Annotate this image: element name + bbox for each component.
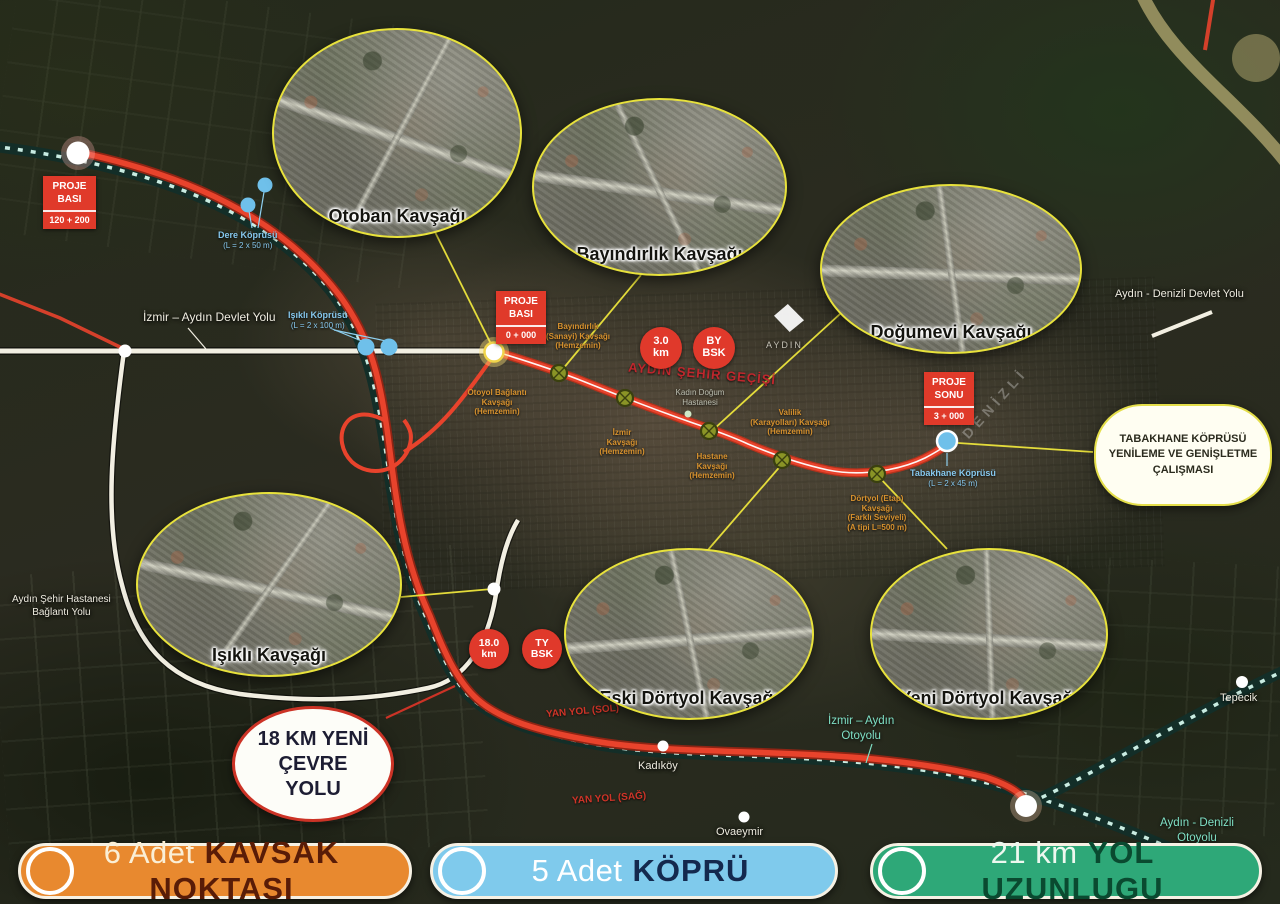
label-junction-hastane: Hastane Kavşağı (Hemzemin)	[680, 452, 744, 481]
label-line: SONU	[924, 390, 974, 403]
label-tabakhane-koprusu: Tabakhane Köprüsü (L = 2 x 45 m)	[910, 468, 996, 489]
marker-proje-basi-0: PROJE BASI 0 + 000	[496, 291, 546, 344]
badge-line: BSK	[531, 649, 553, 660]
callout-eski-dortyol-kavsagi: Eski Dörtyol Kavşağı	[564, 548, 814, 720]
legend-count: 5 Adet	[532, 853, 623, 888]
project-map: AYDIN DENİZLİ İzmir – Aydın Devlet Yolu …	[0, 0, 1280, 904]
label-line: BASI	[496, 309, 546, 322]
legend-count: 6 Adet	[104, 835, 195, 870]
label-line: (Karayolları) Kavşağı	[740, 418, 840, 428]
legend-circle-icon	[878, 847, 926, 895]
marker-value: 0 + 000	[496, 325, 546, 344]
marker-proje-basi-120: PROJE BASI 120 + 200	[43, 176, 96, 229]
legend-circle-icon	[26, 847, 74, 895]
label-izmir-aydin-devlet-yolu: İzmir – Aydın Devlet Yolu	[143, 310, 276, 324]
road-denizli-devlet-stub	[1152, 312, 1212, 336]
label-line: (Farklı Seviyeli)	[830, 513, 924, 523]
legend-count: 21 km	[991, 835, 1078, 870]
note-line: TABAKHANE KÖPRÜSÜ	[1120, 432, 1247, 447]
label-line: Otoyol Bağlantı	[452, 388, 542, 398]
badge-line: BSK	[702, 348, 725, 360]
marker-title: PROJE BASI	[496, 291, 546, 321]
note-line: ÇEVRE	[279, 752, 348, 777]
callout-label: Doğumevi Kavşağı	[822, 322, 1080, 343]
label-hastane-baglanti: Aydın Şehir Hastanesi Bağlantı Yolu	[12, 593, 111, 619]
note-line: YENİLEME VE GENİŞLETME	[1109, 447, 1258, 462]
label-line: Bağlantı Yolu	[12, 606, 111, 619]
badge-3km: 3.0 km	[640, 327, 682, 369]
place-aydin: AYDIN	[766, 340, 803, 350]
place-tepecik: Tepecik	[1220, 692, 1257, 704]
label-line: (Hemzemin)	[740, 427, 840, 437]
label-line: (L = 2 x 50 m)	[218, 241, 278, 251]
label-line: Dörtyol (Etap)	[830, 494, 924, 504]
callout-label: Eski Dörtyol Kavşağı	[566, 688, 812, 709]
callout-bayindirlik-kavsagi: Bayındırlık Kavşağı	[532, 98, 787, 276]
label-line: (L = 2 x 100 m)	[288, 321, 348, 331]
callout-dogumevi-kavsagi: Doğumevi Kavşağı	[820, 184, 1082, 354]
label-junction-valilik: Valilik (Karayolları) Kavşağı (Hemzemin)	[740, 408, 840, 437]
label-line: Kavşağı	[830, 504, 924, 514]
legend-yol-uzunlugu: 21 kmYOL UZUNLUGU	[870, 843, 1262, 899]
legend-kopru: 5 AdetKÖPRÜ	[430, 843, 838, 899]
label-line: Tabakhane Köprüsü	[910, 468, 996, 479]
callout-label: Bayındırlık Kavşağı	[534, 244, 785, 265]
callout-otoban-kavsagi: Otoban Kavşağı	[272, 28, 522, 238]
marker-title: PROJE SONU	[924, 372, 974, 402]
label-line: PROJE	[43, 181, 96, 194]
legend-kavsak: 6 AdetKAVSAK NOKTASI	[18, 843, 412, 899]
label-line: PROJE	[496, 296, 546, 309]
label-line: Aydın Şehir Hastanesi	[12, 593, 111, 606]
place-ovaeymir: Ovaeymir	[716, 826, 763, 838]
note-line: YOLU	[285, 777, 341, 802]
label-line: Hastane	[680, 452, 744, 462]
label-dere-koprusu: Dere Köprüsü (L = 2 x 50 m)	[218, 230, 278, 251]
label-line: (Hemzemin)	[536, 341, 620, 351]
marker-value: 3 + 000	[924, 406, 974, 425]
label-line: (L = 2 x 45 m)	[910, 479, 996, 489]
callout-label: Yeni Dörtyol Kavşağı	[872, 688, 1106, 709]
badge-by-bsk: BY BSK	[693, 327, 735, 369]
label-kadin-dogum-hastanesi: Kadın Doğum Hastanesi	[668, 388, 732, 407]
legend-title: KÖPRÜ	[632, 853, 749, 888]
legend-text: 21 kmYOL UZUNLUGU	[926, 835, 1259, 904]
badge-ty-bsk: TY BSK	[522, 629, 562, 669]
label-line: Kavşağı	[590, 438, 654, 448]
place-kadikoy: Kadıköy	[638, 760, 678, 772]
badge-line: km	[653, 348, 669, 360]
label-line: Otoyolu	[828, 729, 894, 744]
legend-text: 6 AdetKAVSAK NOKTASI	[74, 835, 409, 904]
callout-yeni-dortyol-kavsagi: Yeni Dörtyol Kavşağı	[870, 548, 1108, 720]
label-isikli-koprusu: Işıklı Köprüsü (L = 2 x 100 m)	[288, 310, 348, 331]
note-tabakhane-works: TABAKHANE KÖPRÜSÜ YENİLEME VE GENİŞLETME…	[1094, 404, 1272, 506]
badge-line: km	[481, 649, 496, 660]
label-junction-otoyol-baglanti: Otoyol Bağlantı Kavşağı (Hemzemin)	[452, 388, 542, 417]
note-line: 18 KM YENİ	[258, 727, 369, 752]
legend-text: 5 AdetKÖPRÜ	[486, 853, 835, 889]
label-line: İzmir	[590, 428, 654, 438]
note-line: ÇALIŞMASI	[1153, 463, 1214, 478]
marker-proje-sonu: PROJE SONU 3 + 000	[924, 372, 974, 425]
marker-title: PROJE BASI	[43, 176, 96, 206]
label-line: (Hemzemin)	[590, 447, 654, 457]
label-line: Dere Köprüsü	[218, 230, 278, 241]
label-line: Kavşağı	[452, 398, 542, 408]
note-18km-cevre-yolu: 18 KM YENİ ÇEVRE YOLU	[232, 706, 394, 822]
label-line: (Hemzemin)	[452, 407, 542, 417]
badge-18km: 18.0 km	[469, 629, 509, 669]
callout-label: Işıklı Kavşağı	[138, 645, 400, 666]
label-line: Aydın - Denizli	[1160, 816, 1234, 831]
label-line: PROJE	[924, 377, 974, 390]
label-line: Kadın Doğum	[668, 388, 732, 398]
label-izmir-aydin-otoyolu: İzmir – Aydın Otoyolu	[828, 714, 894, 744]
label-line: Işıklı Köprüsü	[288, 310, 348, 321]
label-junction-izmir: İzmir Kavşağı (Hemzemin)	[590, 428, 654, 457]
label-aydin-denizli-devlet-yolu: Aydın - Denizli Devlet Yolu	[1115, 288, 1244, 300]
label-line: Kavşağı	[680, 462, 744, 472]
callout-isikli-kavsagi: Işıklı Kavşağı	[136, 492, 402, 677]
label-line: BASI	[43, 194, 96, 207]
label-line: (A tipi L=500 m)	[830, 523, 924, 533]
label-line: Bayındırlık	[536, 322, 620, 332]
label-line: (Hemzemin)	[680, 471, 744, 481]
label-junction-bayindirlik-sanayi: Bayındırlık (Sanayi) Kavşağı (Hemzemin)	[536, 322, 620, 351]
label-line: Valilik	[740, 408, 840, 418]
label-line: (Sanayi) Kavşağı	[536, 332, 620, 342]
marker-value: 120 + 200	[43, 210, 96, 229]
label-junction-dortyol-etap: Dörtyol (Etap) Kavşağı (Farklı Seviyeli)…	[830, 494, 924, 532]
legend-circle-icon	[438, 847, 486, 895]
label-line: Hastanesi	[668, 398, 732, 408]
callout-label: Otoban Kavşağı	[274, 206, 520, 227]
